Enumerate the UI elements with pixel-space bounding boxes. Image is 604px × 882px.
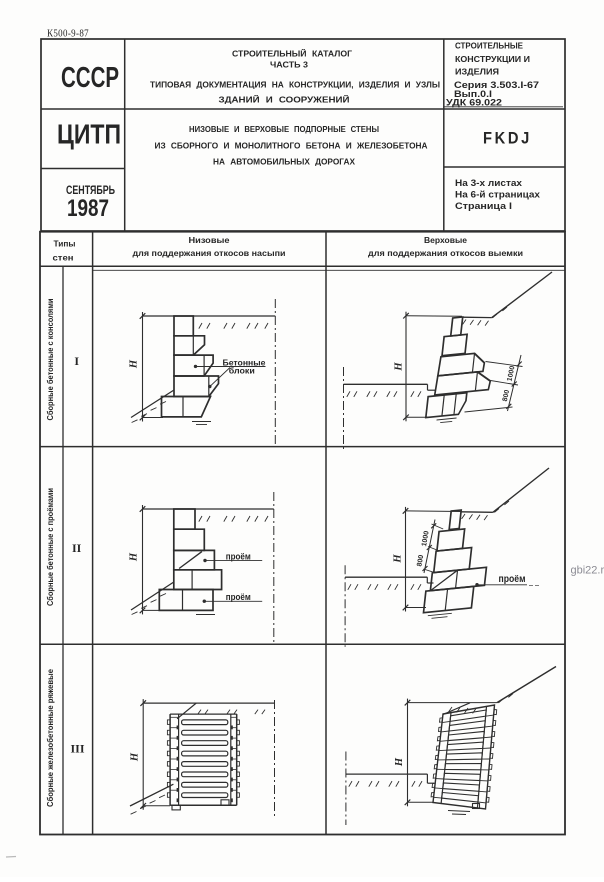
svg-text:Верховые: Верховые [424, 235, 467, 245]
svg-text:ЦИТП: ЦИТП [57, 119, 121, 150]
svg-text:СССР: СССР [61, 62, 119, 94]
svg-text:gbi22.ru: gbi22.ru [571, 565, 604, 577]
svg-text:На 6-й страницах: На 6-й страницах [455, 190, 540, 200]
svg-text:стен: стен [53, 253, 74, 263]
svg-text:1987: 1987 [67, 195, 109, 222]
svg-text:ИЗДЕЛИЯ: ИЗДЕЛИЯ [455, 67, 499, 77]
svg-text:II: II [72, 541, 82, 555]
svg-text:проём: проём [226, 551, 251, 561]
svg-text:К500-9-87: К500-9-87 [47, 29, 89, 40]
svg-text:НА АВТОМОБИЛЬНЫХ ДОРОГАХ: НА АВТОМОБИЛЬНЫХ ДОРОГАХ [213, 157, 355, 167]
svg-text:ИЗ СБОРНОГО И МОНОЛИТНОГО: ИЗ СБОРНОГО И МОНОЛИТНОГО БЕТОНА И ЖЕЛЕЗ… [155, 141, 428, 151]
svg-text:Н: Н [129, 552, 140, 562]
svg-text:Н: Н [393, 554, 404, 564]
svg-text:Н: Н [394, 757, 405, 767]
svg-text:для поддержания откосов выемки: для поддержания откосов выемки [368, 248, 523, 258]
svg-text:НИЗОВЫЕ И ВЕРХОВЫЕ ПОДПОРНЫ: НИЗОВЫЕ И ВЕРХОВЫЕ ПОДПОРНЫЕ СТЕНЫ [189, 124, 379, 134]
svg-text:I: I [74, 354, 79, 368]
svg-text:проём: проём [226, 592, 251, 602]
svg-text:для поддержания откосов насыпи: для поддержания откосов насыпи [133, 248, 286, 258]
svg-text:ЧАСТЬ 3: ЧАСТЬ 3 [270, 60, 308, 70]
svg-text:УДК 69.022: УДК 69.022 [446, 98, 502, 108]
svg-text:проём: проём [499, 574, 526, 585]
svg-text:Страница I: Страница I [455, 201, 512, 211]
svg-text:На 3-х листах: На 3-х листах [455, 178, 522, 188]
svg-text:Н: Н [129, 359, 140, 369]
svg-text:СТРОИТЕЛЬНЫЙ КАТАЛОГ: СТРОИТЕЛЬНЫЙ КАТАЛОГ [232, 48, 352, 59]
svg-text:FKDJ: FKDJ [483, 130, 532, 148]
svg-text:Типы: Типы [54, 239, 76, 249]
svg-text:Н: Н [393, 362, 404, 372]
svg-text:ТИПОВАЯ ДОКУМЕНТАЦИЯ НА КОН: ТИПОВАЯ ДОКУМЕНТАЦИЯ НА КОНСТРУКЦИИ, ИЗД… [150, 80, 440, 90]
svg-text:Низовые: Низовые [189, 235, 230, 245]
svg-text:ЗДАНИЙ И СООРУЖЕНИЙ: ЗДАНИЙ И СООРУЖЕНИЙ [219, 94, 350, 105]
svg-text:Сборные бетонные с консолями: Сборные бетонные с консолями [46, 298, 55, 420]
svg-text:СТРОИТЕЛЬНЫЕ: СТРОИТЕЛЬНЫЕ [455, 41, 523, 51]
svg-text:III: III [70, 741, 84, 755]
svg-text:КОНСТРУКЦИИ И: КОНСТРУКЦИИ И [455, 54, 530, 64]
svg-text:Сборные железобетонные ряжевые: Сборные железобетонные ряжевые [46, 668, 55, 807]
svg-text:Н: Н [130, 752, 141, 762]
svg-text:Сборные бетонные с проёмами: Сборные бетонные с проёмами [46, 488, 55, 606]
